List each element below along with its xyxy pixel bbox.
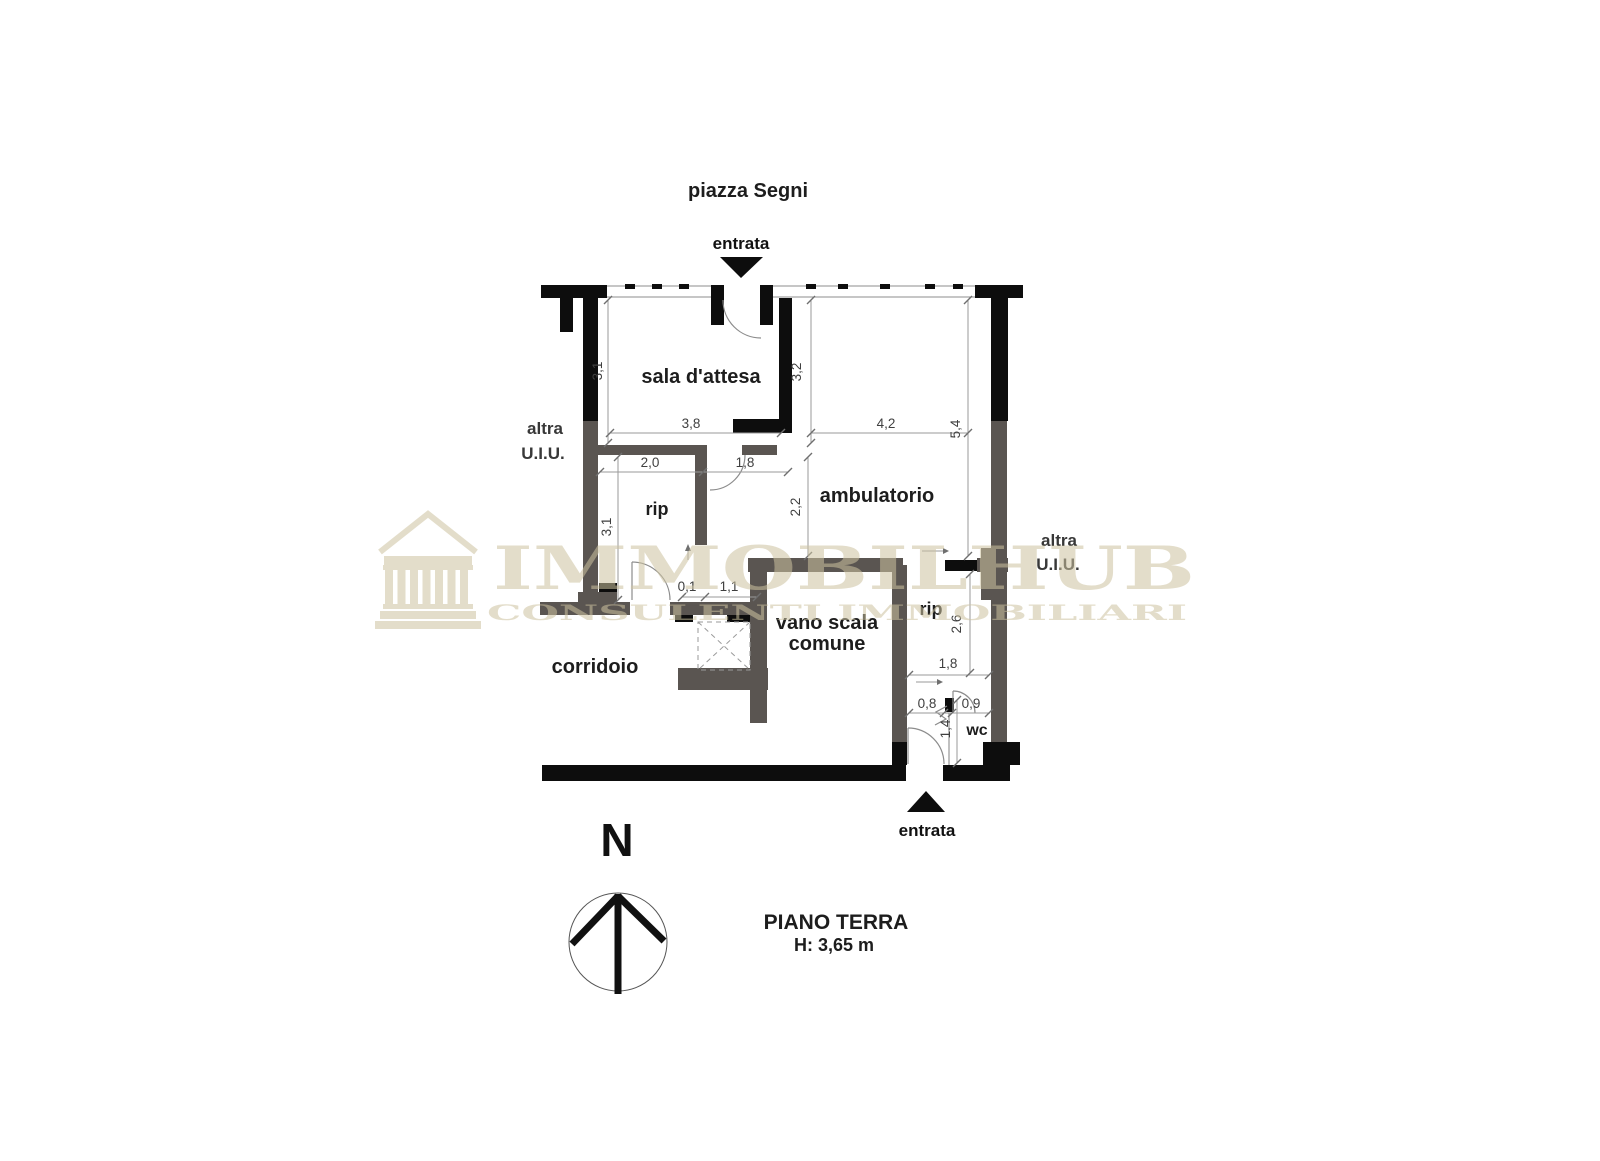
dim-wc-b: 0,9 — [962, 696, 981, 711]
north-label: N — [600, 814, 633, 866]
dim-sala-height: 3,1 — [590, 362, 605, 381]
entrance-bottom-label: entrata — [899, 821, 956, 840]
window-band-right — [773, 284, 975, 297]
dim-hall-width: 1,8 — [939, 656, 958, 671]
street-label: piazza Segni — [688, 180, 808, 202]
entrance-top-arrow-icon — [720, 257, 763, 278]
room-wc: wc — [965, 722, 987, 739]
elevator-shaft-icon — [698, 622, 750, 670]
room-vano-scala-line2: comune — [789, 633, 866, 655]
compass: N — [569, 814, 667, 994]
watermark-tagline: CONSULENTI IMMOBILIARI — [487, 600, 1187, 625]
dim-ambulatorio-lower: 2,2 — [788, 498, 803, 517]
dim-sala-width: 3,8 — [682, 416, 701, 431]
dim-ambulatorio-height: 3,2 — [789, 363, 804, 382]
room-sala-attesa: sala d'attesa — [641, 366, 761, 388]
entrance-bottom-arrow-icon — [907, 791, 945, 812]
dim-depth: 5,4 — [948, 419, 963, 438]
room-rip-left: rip — [645, 499, 668, 519]
adjacent-left-line2: U.I.U. — [521, 444, 564, 463]
dim-wc-height: 1,4 — [938, 719, 953, 738]
floor-title: PIANO TERRA — [764, 911, 909, 934]
temple-logo-icon — [375, 514, 481, 629]
floor-height: H: 3,65 m — [794, 935, 874, 955]
dim-ambulatorio-width: 4,2 — [877, 416, 896, 431]
dim-rip-width: 2,0 — [641, 455, 660, 470]
dim-door-width: 1,8 — [736, 455, 755, 470]
dim-wc-a: 0,8 — [918, 696, 937, 711]
room-corridoio: corridoio — [552, 656, 639, 678]
entrance-top-label: entrata — [713, 234, 770, 253]
watermark-brand: IMMOBILHUB — [493, 534, 1195, 604]
room-ambulatorio: ambulatorio — [820, 485, 934, 507]
window-band-left — [607, 284, 711, 297]
adjacent-left-line1: altra — [527, 419, 563, 438]
floor-plan-drawing: piazza Segni entrata — [0, 0, 1600, 1161]
floor-plan-page: piazza Segni entrata — [0, 0, 1600, 1161]
